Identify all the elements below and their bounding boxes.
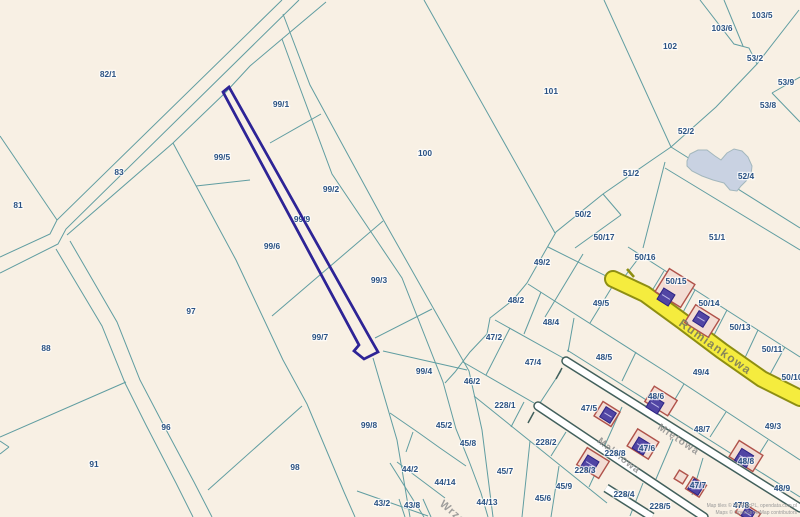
svg-text:43/8: 43/8 <box>404 500 421 510</box>
svg-text:44/13: 44/13 <box>477 497 498 507</box>
svg-text:53/9: 53/9 <box>778 77 795 87</box>
svg-text:47/5: 47/5 <box>581 403 598 413</box>
svg-text:99/3: 99/3 <box>371 275 388 285</box>
svg-text:83: 83 <box>114 167 124 177</box>
svg-text:49/5: 49/5 <box>593 298 610 308</box>
svg-text:50/2: 50/2 <box>575 209 592 219</box>
svg-text:48/7: 48/7 <box>694 424 711 434</box>
svg-text:48/5: 48/5 <box>596 352 613 362</box>
svg-text:48/8: 48/8 <box>738 456 755 466</box>
svg-text:50/15: 50/15 <box>666 276 687 286</box>
svg-text:47/2: 47/2 <box>486 332 503 342</box>
svg-text:45/7: 45/7 <box>497 466 514 476</box>
svg-text:49/4: 49/4 <box>693 367 710 377</box>
svg-text:51/1: 51/1 <box>709 232 726 242</box>
svg-text:103/5: 103/5 <box>752 10 773 20</box>
svg-text:49/3: 49/3 <box>765 421 782 431</box>
svg-text:50/13: 50/13 <box>730 322 751 332</box>
svg-text:53/2: 53/2 <box>747 53 764 63</box>
svg-text:46/2: 46/2 <box>464 376 481 386</box>
svg-text:91: 91 <box>89 459 99 469</box>
svg-text:98: 98 <box>290 462 300 472</box>
svg-text:48/2: 48/2 <box>508 295 525 305</box>
svg-text:45/9: 45/9 <box>556 481 573 491</box>
svg-text:48/6: 48/6 <box>648 391 665 401</box>
svg-text:103/6: 103/6 <box>712 23 733 33</box>
svg-text:44/2: 44/2 <box>402 464 419 474</box>
svg-text:99/2: 99/2 <box>323 184 340 194</box>
svg-text:47/6: 47/6 <box>639 443 656 453</box>
svg-text:96: 96 <box>161 422 171 432</box>
svg-text:Maps © OpenStreetMap contribut: Maps © OpenStreetMap contributors <box>716 509 798 516</box>
svg-text:81: 81 <box>13 200 23 210</box>
svg-text:43/2: 43/2 <box>374 498 391 508</box>
svg-text:228/3: 228/3 <box>575 465 596 475</box>
svg-text:99/6: 99/6 <box>264 241 281 251</box>
svg-text:99/4: 99/4 <box>416 366 433 376</box>
svg-text:53/8: 53/8 <box>760 100 777 110</box>
svg-text:50/11: 50/11 <box>762 344 783 354</box>
svg-text:99/5: 99/5 <box>214 152 231 162</box>
svg-text:102: 102 <box>663 41 677 51</box>
svg-text:97: 97 <box>186 306 196 316</box>
svg-text:99/1: 99/1 <box>273 99 290 109</box>
svg-text:101: 101 <box>544 86 558 96</box>
svg-text:51/2: 51/2 <box>623 168 640 178</box>
svg-text:45/2: 45/2 <box>436 420 453 430</box>
svg-text:49/2: 49/2 <box>534 257 551 267</box>
svg-text:52/2: 52/2 <box>678 126 695 136</box>
svg-text:50/10: 50/10 <box>782 372 800 382</box>
svg-text:50/16: 50/16 <box>635 252 656 262</box>
svg-text:50/14: 50/14 <box>699 298 720 308</box>
svg-text:228/4: 228/4 <box>614 489 635 499</box>
svg-text:82/1: 82/1 <box>100 69 117 79</box>
svg-text:47/7: 47/7 <box>690 480 707 490</box>
svg-text:88: 88 <box>41 343 51 353</box>
svg-text:45/6: 45/6 <box>535 493 552 503</box>
svg-text:228/8: 228/8 <box>605 448 626 458</box>
svg-text:44/14: 44/14 <box>435 477 456 487</box>
svg-text:47/4: 47/4 <box>525 357 542 367</box>
svg-text:50/17: 50/17 <box>594 232 615 242</box>
svg-text:Map tiles © UMP-pcPL, opendata: Map tiles © UMP-pcPL, opendata.com.pl <box>707 502 797 509</box>
svg-text:52/4: 52/4 <box>738 171 755 181</box>
svg-text:228/5: 228/5 <box>650 501 671 511</box>
svg-text:228/2: 228/2 <box>536 437 557 447</box>
svg-text:228/1: 228/1 <box>495 400 516 410</box>
svg-text:48/4: 48/4 <box>543 317 560 327</box>
svg-text:100: 100 <box>418 148 432 158</box>
svg-text:45/8: 45/8 <box>460 438 477 448</box>
svg-text:48/9: 48/9 <box>774 483 791 493</box>
svg-text:99/7: 99/7 <box>312 332 329 342</box>
svg-text:99/8: 99/8 <box>361 420 378 430</box>
